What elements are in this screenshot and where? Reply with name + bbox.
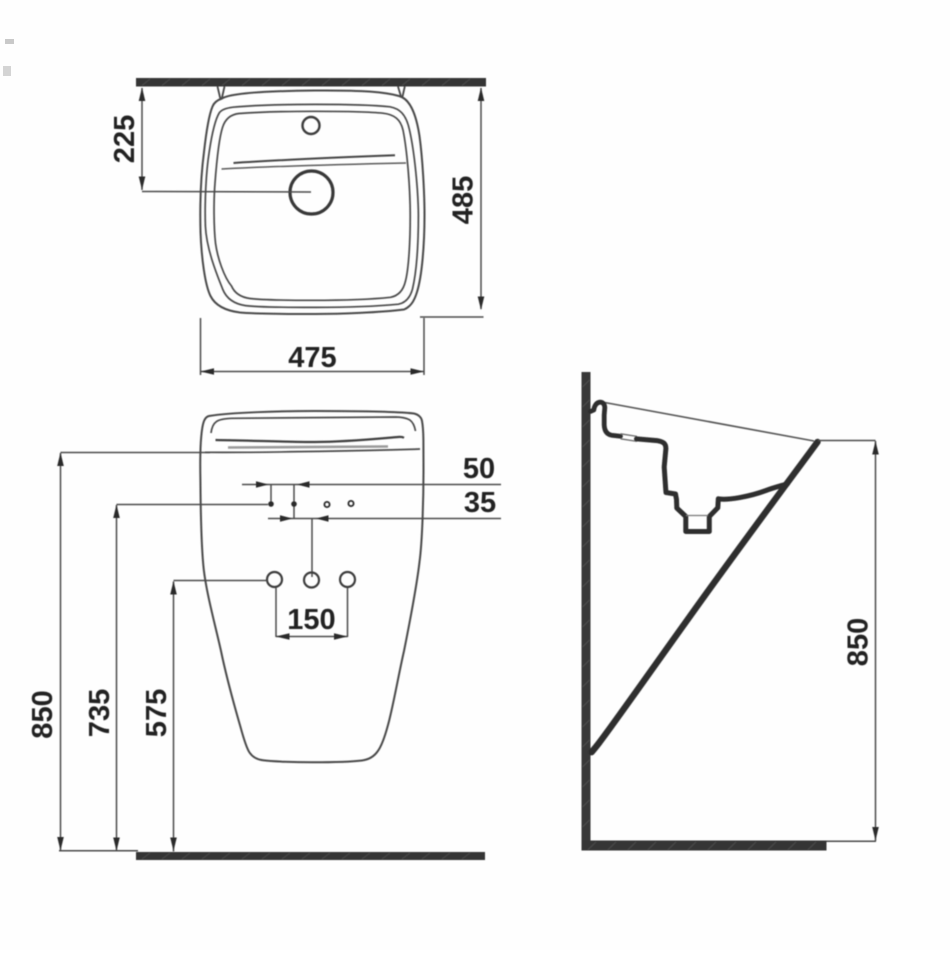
svg-text:35: 35 — [464, 487, 496, 519]
svg-text:150: 150 — [287, 604, 335, 636]
svg-text:850: 850 — [843, 618, 875, 666]
svg-text:485: 485 — [448, 176, 480, 224]
svg-text:50: 50 — [463, 453, 495, 485]
svg-text:735: 735 — [84, 689, 116, 737]
svg-text:575: 575 — [141, 689, 173, 737]
svg-text:475: 475 — [288, 342, 336, 374]
svg-text:850: 850 — [27, 690, 59, 738]
svg-text:225: 225 — [109, 115, 141, 163]
